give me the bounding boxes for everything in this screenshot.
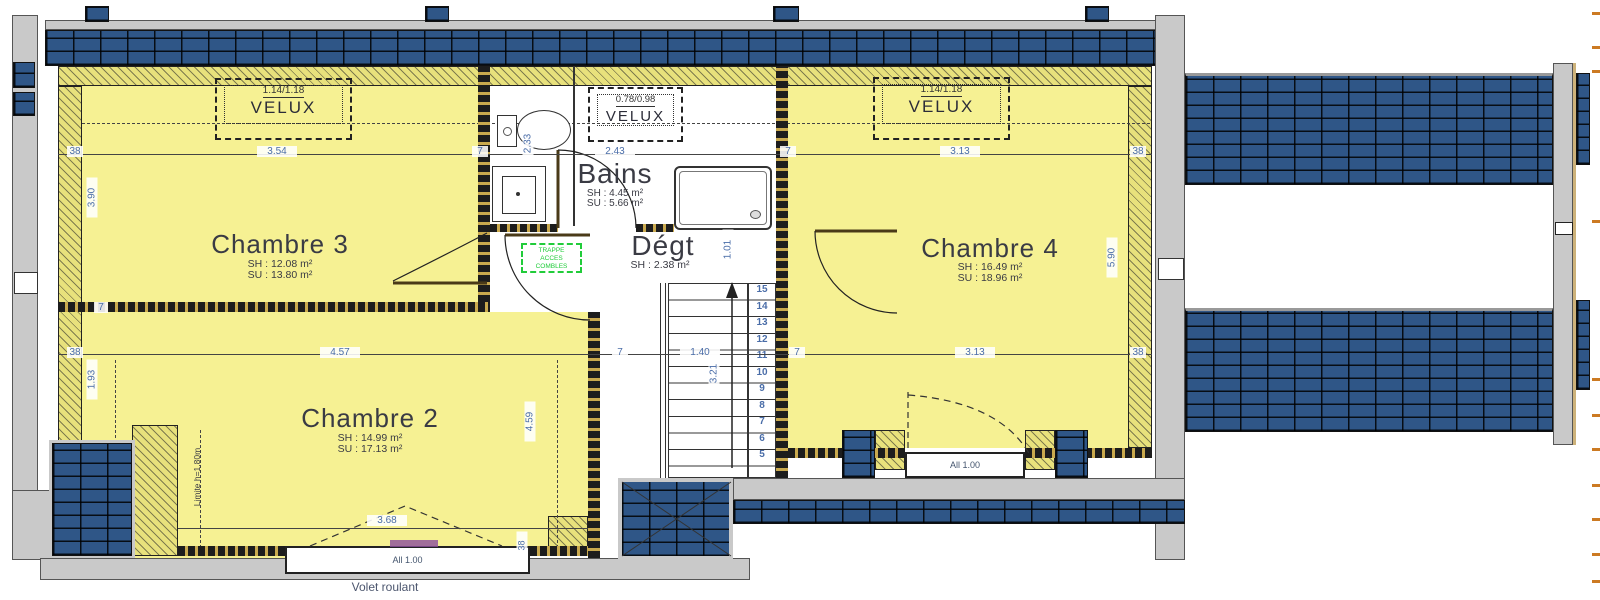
top-brick-band [45,30,1160,66]
window-chambre2: All 1.00 [285,546,530,574]
room-bains-su: SU : 5.66 m² [555,198,675,209]
velux-left-label: VELUX [251,98,317,117]
dim-degt-width: 1.01 [723,230,734,270]
velux-middle: 0.78/0.98 VELUX [588,87,683,142]
trappe-line-1: TRAPPE [523,247,580,255]
window-chambre2-label: All 1.00 [392,555,422,565]
edge-tick [1592,12,1600,15]
limit-line-vertical-3 [557,360,558,548]
stair-step-9: 9 [750,383,774,394]
dim-left-upper: 3.90 [87,178,98,218]
dim-mid-6: 38 [1130,347,1146,358]
dim-mid-0: 38 [67,347,83,358]
room-fill-chambre2-ext [490,312,588,548]
bottom-gray-band-right [733,478,1185,500]
velux-middle-size: 0.78/0.98 [616,94,656,107]
chimney [1553,63,1573,445]
wall-bains-degt-left [490,224,558,232]
edge-tick [1592,553,1600,556]
stair-step-7: 7 [750,416,774,427]
room-chambre2-name: Chambre 2 [250,404,490,432]
edge-tick [1592,580,1600,583]
dim-top-2: 7 [472,146,488,157]
insulation-right [1128,86,1152,448]
chimney-brick-top [1576,73,1590,165]
velux-right-size: 1.14/1.18 [921,84,963,97]
velux-left-size: 1.14/1.18 [263,85,305,98]
room-degt-sh: SH : 2.38 m² [600,260,720,271]
dim-top-5: 3.13 [940,146,980,157]
top-cap [45,20,1160,30]
dim-line-bottom [178,528,588,529]
edge-tick [1592,378,1600,381]
room-chambre4-su: SU : 18.96 m² [870,273,1110,284]
bottom-brick-band-right [733,500,1185,524]
top-block-4 [1085,6,1109,22]
dim-window-jamb: 38 [517,532,528,560]
wall-ch3-ch2 [58,302,490,312]
top-block-2 [425,6,449,22]
edge-tick [1592,46,1600,49]
window-size-annotation [390,540,438,547]
bottom-left-brick-block [52,443,132,556]
trappe-line-3: COMBLES [523,263,580,271]
floor-plan-canvas: All 1.00 All 1.00 1.14/1.18 VELUX 0.78/0… [0,0,1600,600]
room-bains-name: Bains [555,160,675,188]
left-block-2 [13,92,35,116]
velux-middle-label: VELUX [606,108,665,125]
dim-top-1: 3.54 [257,146,297,157]
wall-stairs-ch4 [776,66,788,478]
velux-right: 1.14/1.18 VELUX [873,77,1010,140]
edge-tick [1592,414,1600,417]
stair-step-13: 13 [750,317,774,328]
dim-top-6: 38 [1130,146,1146,157]
trappe-combles-box: TRAPPE ACCES COMBLES [521,243,582,273]
dim-left-seven: 7 [94,302,108,313]
room-chambre3-su: SU : 13.80 m² [160,270,400,281]
edge-tick [1592,70,1600,73]
room-chambre3-name: Chambre 3 [160,230,400,258]
top-block-1 [85,6,109,22]
dim-top-4: 7 [780,146,796,157]
dim-mid-5: 3.13 [955,347,995,358]
stair-step-8: 8 [750,400,774,411]
left-block-1 [13,62,35,88]
chimney-vent [1555,222,1573,235]
annex-wall-bottom [1185,308,1553,432]
stair-step-5: 5 [750,449,774,460]
edge-tick [1592,518,1600,521]
stair-step-12: 12 [750,334,774,345]
dim-left-lower: 1.93 [87,360,98,400]
wall-ch2-bottom-left [178,546,285,556]
stair-stringer [660,283,666,478]
trappe-line-2: ACCES [523,255,580,263]
stair-step-10: 10 [750,367,774,378]
dim-stair-length: 3.21 [709,354,720,394]
stair-step-11: 11 [750,350,774,361]
wall-ch2-bottom-right [530,546,588,556]
shower-drain [750,210,761,219]
limite-label: Limite h=1.80m [192,432,202,522]
dim-top-0: 38 [67,146,83,157]
dim-top-3: 2.43 [595,146,635,157]
ch4-window-brick-r [1055,430,1088,478]
annex-wall-top [1185,73,1553,185]
dim-mid-2: 7 [612,347,628,358]
dim-mid-4: 7 [789,347,805,358]
stair-step-14: 14 [750,301,774,312]
dim-right-height: 5.90 [1107,238,1118,278]
room-chambre2-su: SU : 17.13 m² [250,444,490,455]
edge-tick [1592,484,1600,487]
right-wall-window [1158,258,1184,280]
stair-step-15: 15 [750,284,774,295]
wall-ch2-stairs [588,312,600,558]
edge-tick [1592,448,1600,451]
top-block-3 [773,6,799,22]
insulation-pier-bl [132,425,178,556]
ch4-window-brick-l [842,430,875,478]
edge-tick [1592,220,1600,223]
dim-ch2-height: 4.59 [525,402,536,442]
dim-wc-depth: 2.33 [523,124,534,164]
window-chambre4: All 1.00 [905,452,1025,478]
window-chambre4-label: All 1.00 [950,460,980,470]
wall-ch3-bains [478,66,490,312]
dim-mid-1: 4.57 [320,347,360,358]
vanity-drain [516,192,520,196]
velux-right-label: VELUX [909,97,975,116]
room-chambre4-name: Chambre 4 [870,234,1110,262]
stair-step-6: 6 [750,433,774,444]
left-corner-gray [12,490,52,560]
wc-tank-button [503,127,512,136]
velux-left: 1.14/1.18 VELUX [215,78,352,140]
wall-ch4-bottom-right [1025,448,1152,458]
room-degt-name: Dégt [608,232,718,260]
volet-roulant-label: Volet roulant [320,580,450,594]
dim-ch2-window: 3.68 [367,515,407,526]
left-wall-window [14,272,38,294]
stair-brick-block [618,478,733,560]
chimney-brick-bottom [1576,300,1590,390]
